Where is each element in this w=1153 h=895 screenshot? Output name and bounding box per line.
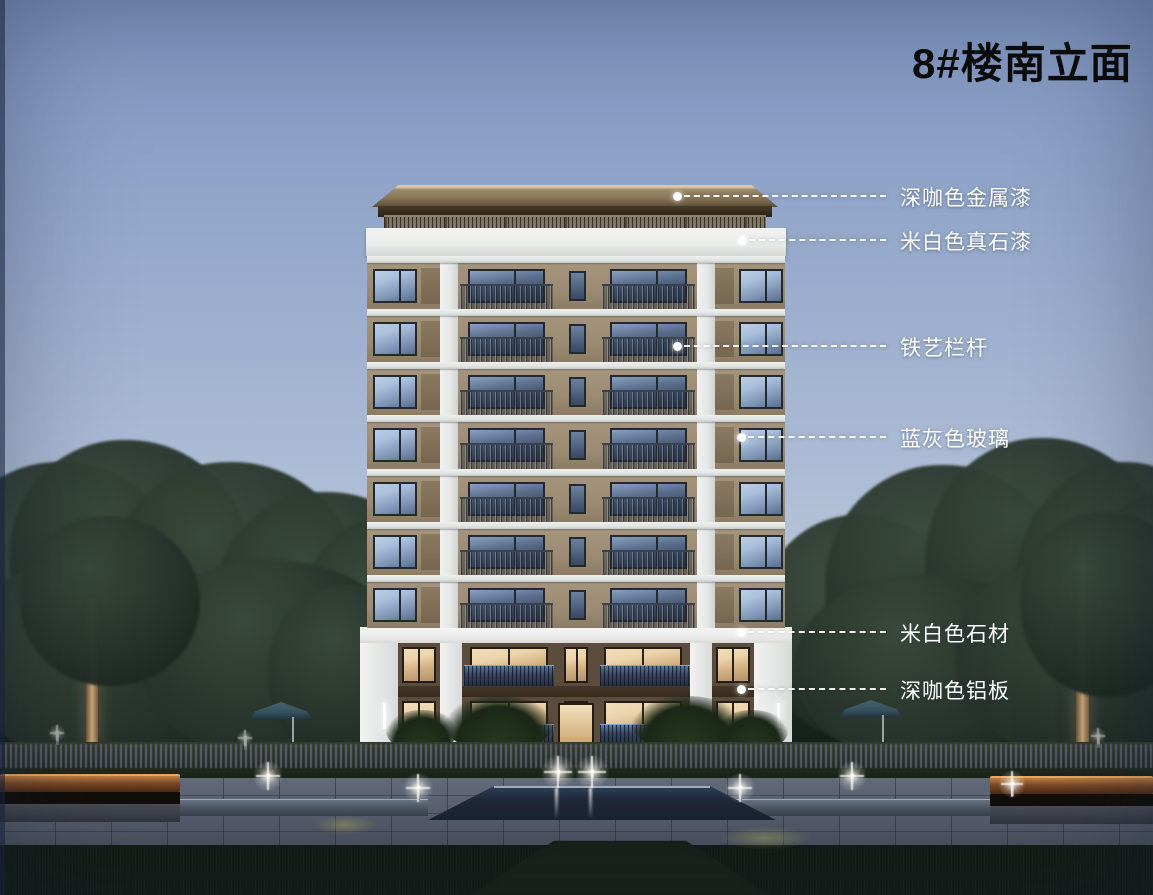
annotation-leader-line (684, 195, 886, 197)
annotation-dot (737, 628, 746, 637)
annotation-dot (673, 192, 682, 201)
annotation-dot (737, 433, 746, 442)
annotation-label: 深咖色铝板 (900, 675, 1010, 705)
annotation-label: 米白色石材 (900, 618, 1010, 648)
annotation-label: 深咖色金属漆 (900, 182, 1032, 212)
annotation-label: 铁艺栏杆 (900, 332, 988, 362)
annotation-label: 米白色真石漆 (900, 226, 1032, 256)
annotation-dot (673, 342, 682, 351)
annotation-dot (737, 685, 746, 694)
annotation-dot (738, 236, 747, 245)
annotation-leader-line (748, 631, 886, 633)
annotation-leader-line (748, 688, 886, 690)
annotation-leader-line (684, 345, 886, 347)
annotation-leader-line (749, 239, 886, 241)
annotation-label: 蓝灰色玻璃 (900, 423, 1010, 453)
annotation-leader-line (748, 436, 886, 438)
elevation-rendering: 8#楼南立面 深咖色金属漆米白色真石漆铁艺栏杆蓝灰色玻璃米白色石材深咖色铝板 (0, 0, 1153, 895)
annotation-layer: 深咖色金属漆米白色真石漆铁艺栏杆蓝灰色玻璃米白色石材深咖色铝板 (0, 0, 1153, 895)
